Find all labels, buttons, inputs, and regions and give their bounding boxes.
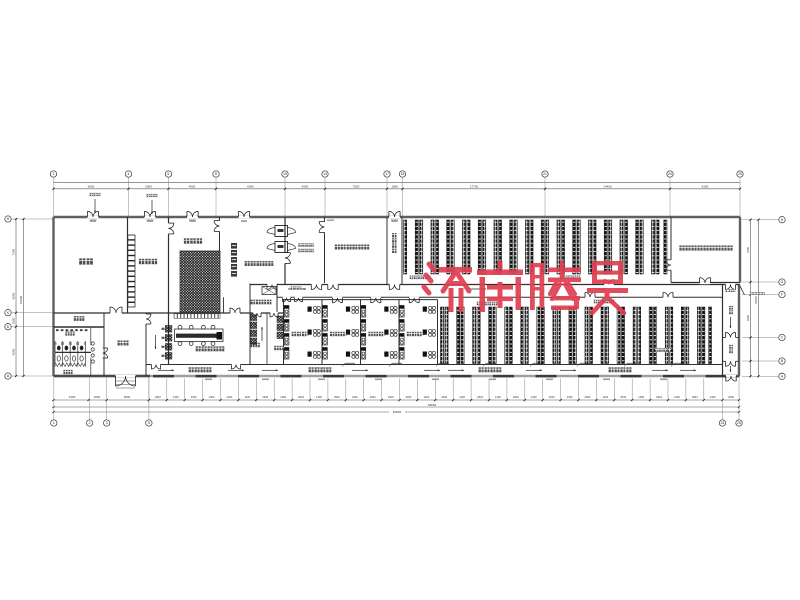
svg-text:4: 4 xyxy=(128,172,130,176)
svg-text:1: 1 xyxy=(53,421,55,425)
svg-text:7200: 7200 xyxy=(746,246,750,253)
svg-text:2943: 2943 xyxy=(227,395,233,399)
svg-text:7500: 7500 xyxy=(353,185,360,189)
svg-text:2943: 2943 xyxy=(298,395,304,399)
svg-text:15900: 15900 xyxy=(19,295,23,304)
svg-text:4000: 4000 xyxy=(189,185,196,189)
svg-text:5000: 5000 xyxy=(124,395,131,399)
svg-text:9600: 9600 xyxy=(88,185,95,189)
svg-text:1400: 1400 xyxy=(674,395,680,399)
svg-text:4500: 4500 xyxy=(12,348,16,355)
svg-text:24: 24 xyxy=(668,172,672,176)
svg-text:6: 6 xyxy=(168,172,170,176)
svg-text:25: 25 xyxy=(738,172,742,176)
svg-text:2943: 2943 xyxy=(334,395,340,399)
svg-text:24: 24 xyxy=(721,421,725,425)
svg-text:15900: 15900 xyxy=(754,296,758,304)
svg-text:1: 1 xyxy=(53,172,55,176)
svg-text:5000: 5000 xyxy=(12,292,16,299)
svg-text:2943: 2943 xyxy=(477,395,483,399)
svg-text:1400: 1400 xyxy=(209,395,215,399)
svg-text:8: 8 xyxy=(215,172,217,176)
svg-text:1800: 1800 xyxy=(12,317,16,324)
svg-text:G: G xyxy=(781,280,784,284)
svg-text:4500: 4500 xyxy=(302,185,309,189)
svg-text:2000: 2000 xyxy=(94,395,101,399)
svg-text:1400: 1400 xyxy=(638,395,644,399)
svg-text:1400: 1400 xyxy=(423,395,429,399)
svg-text:1400: 1400 xyxy=(602,395,608,399)
svg-text:2943: 2943 xyxy=(620,395,626,399)
svg-text:64802: 64802 xyxy=(428,403,437,407)
svg-text:14400: 14400 xyxy=(603,185,612,189)
svg-text:2943: 2943 xyxy=(692,395,698,399)
svg-text:2943: 2943 xyxy=(155,395,161,399)
svg-text:1400: 1400 xyxy=(495,395,501,399)
svg-text:1800: 1800 xyxy=(391,185,398,189)
svg-text:2943: 2943 xyxy=(262,395,268,399)
svg-text:2943: 2943 xyxy=(406,395,412,399)
svg-text:3: 3 xyxy=(106,421,108,425)
svg-text:5: 5 xyxy=(148,421,150,425)
svg-text:2943: 2943 xyxy=(549,395,555,399)
svg-text:1400: 1400 xyxy=(352,395,358,399)
svg-text:1400: 1400 xyxy=(173,395,179,399)
svg-text:8100: 8100 xyxy=(702,185,709,189)
svg-text:1400: 1400 xyxy=(567,395,573,399)
svg-text:5000: 5000 xyxy=(145,185,152,189)
svg-text:7200: 7200 xyxy=(12,248,16,255)
svg-text:1400: 1400 xyxy=(531,395,537,399)
svg-text:F: F xyxy=(781,293,783,297)
svg-text:1400: 1400 xyxy=(710,395,716,399)
svg-text:81802: 81802 xyxy=(393,410,402,414)
svg-text:17: 17 xyxy=(385,172,389,176)
svg-text:18: 18 xyxy=(401,172,405,176)
svg-text:6000: 6000 xyxy=(247,185,254,189)
svg-text:2943: 2943 xyxy=(441,395,447,399)
svg-text:4300: 4300 xyxy=(69,395,76,399)
svg-text:1400: 1400 xyxy=(459,395,465,399)
svg-text:1400: 1400 xyxy=(316,395,322,399)
svg-text:10: 10 xyxy=(283,172,287,176)
svg-text:2: 2 xyxy=(89,421,91,425)
svg-text:2943: 2943 xyxy=(370,395,376,399)
svg-text:2000: 2000 xyxy=(728,395,734,399)
svg-text:1400: 1400 xyxy=(388,395,394,399)
svg-text:21: 21 xyxy=(543,172,547,176)
svg-text:25: 25 xyxy=(737,421,741,425)
svg-text:14: 14 xyxy=(323,172,327,176)
svg-text:2943: 2943 xyxy=(656,395,662,399)
svg-text:2943: 2943 xyxy=(585,395,591,399)
svg-text:2943: 2943 xyxy=(513,395,519,399)
svg-text:2943: 2943 xyxy=(191,395,197,399)
svg-text:17700: 17700 xyxy=(470,185,479,189)
svg-text:1400: 1400 xyxy=(244,395,250,399)
svg-text:4300: 4300 xyxy=(746,314,750,321)
svg-text:1400: 1400 xyxy=(280,395,286,399)
